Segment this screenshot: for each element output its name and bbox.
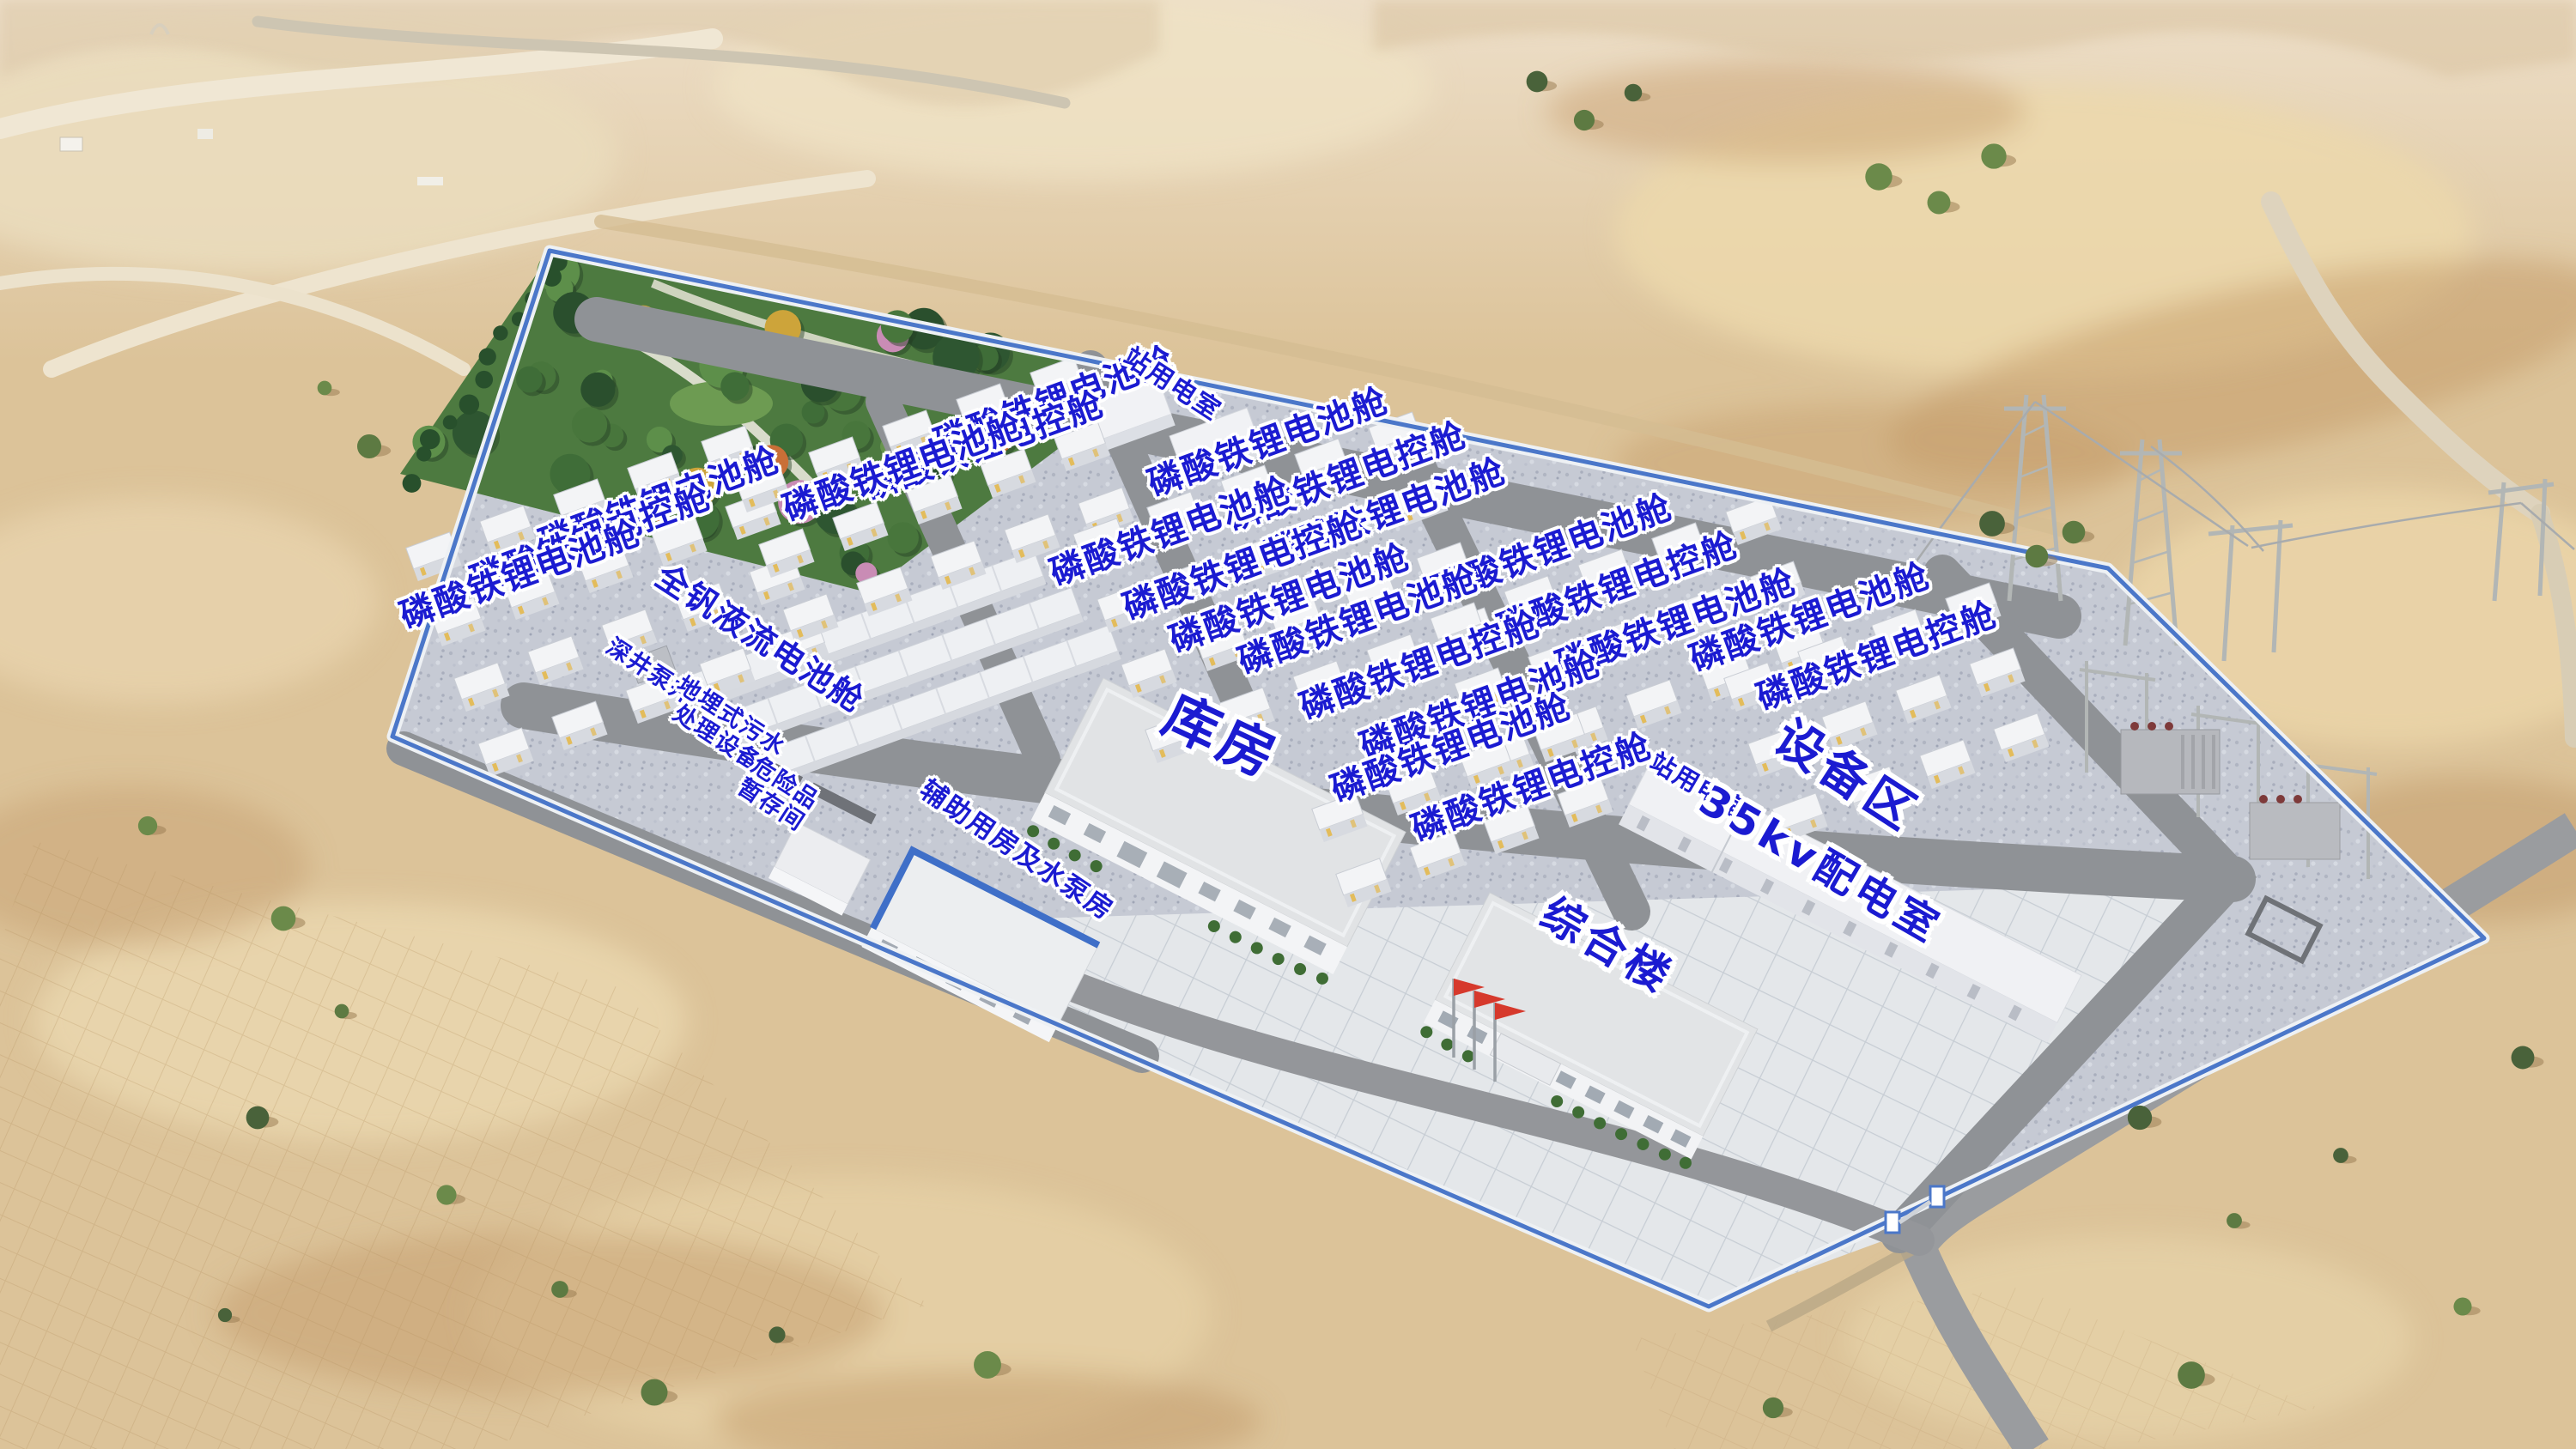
energy-storage-site-rendering: 磷酸铁锂电池舱 磷酸铁锂电控舱 磷酸铁锂电池舱 磷酸铁锂电池舱 磷酸铁锂电控舱 …: [0, 0, 2576, 1449]
aerial-render: [0, 0, 2576, 1449]
